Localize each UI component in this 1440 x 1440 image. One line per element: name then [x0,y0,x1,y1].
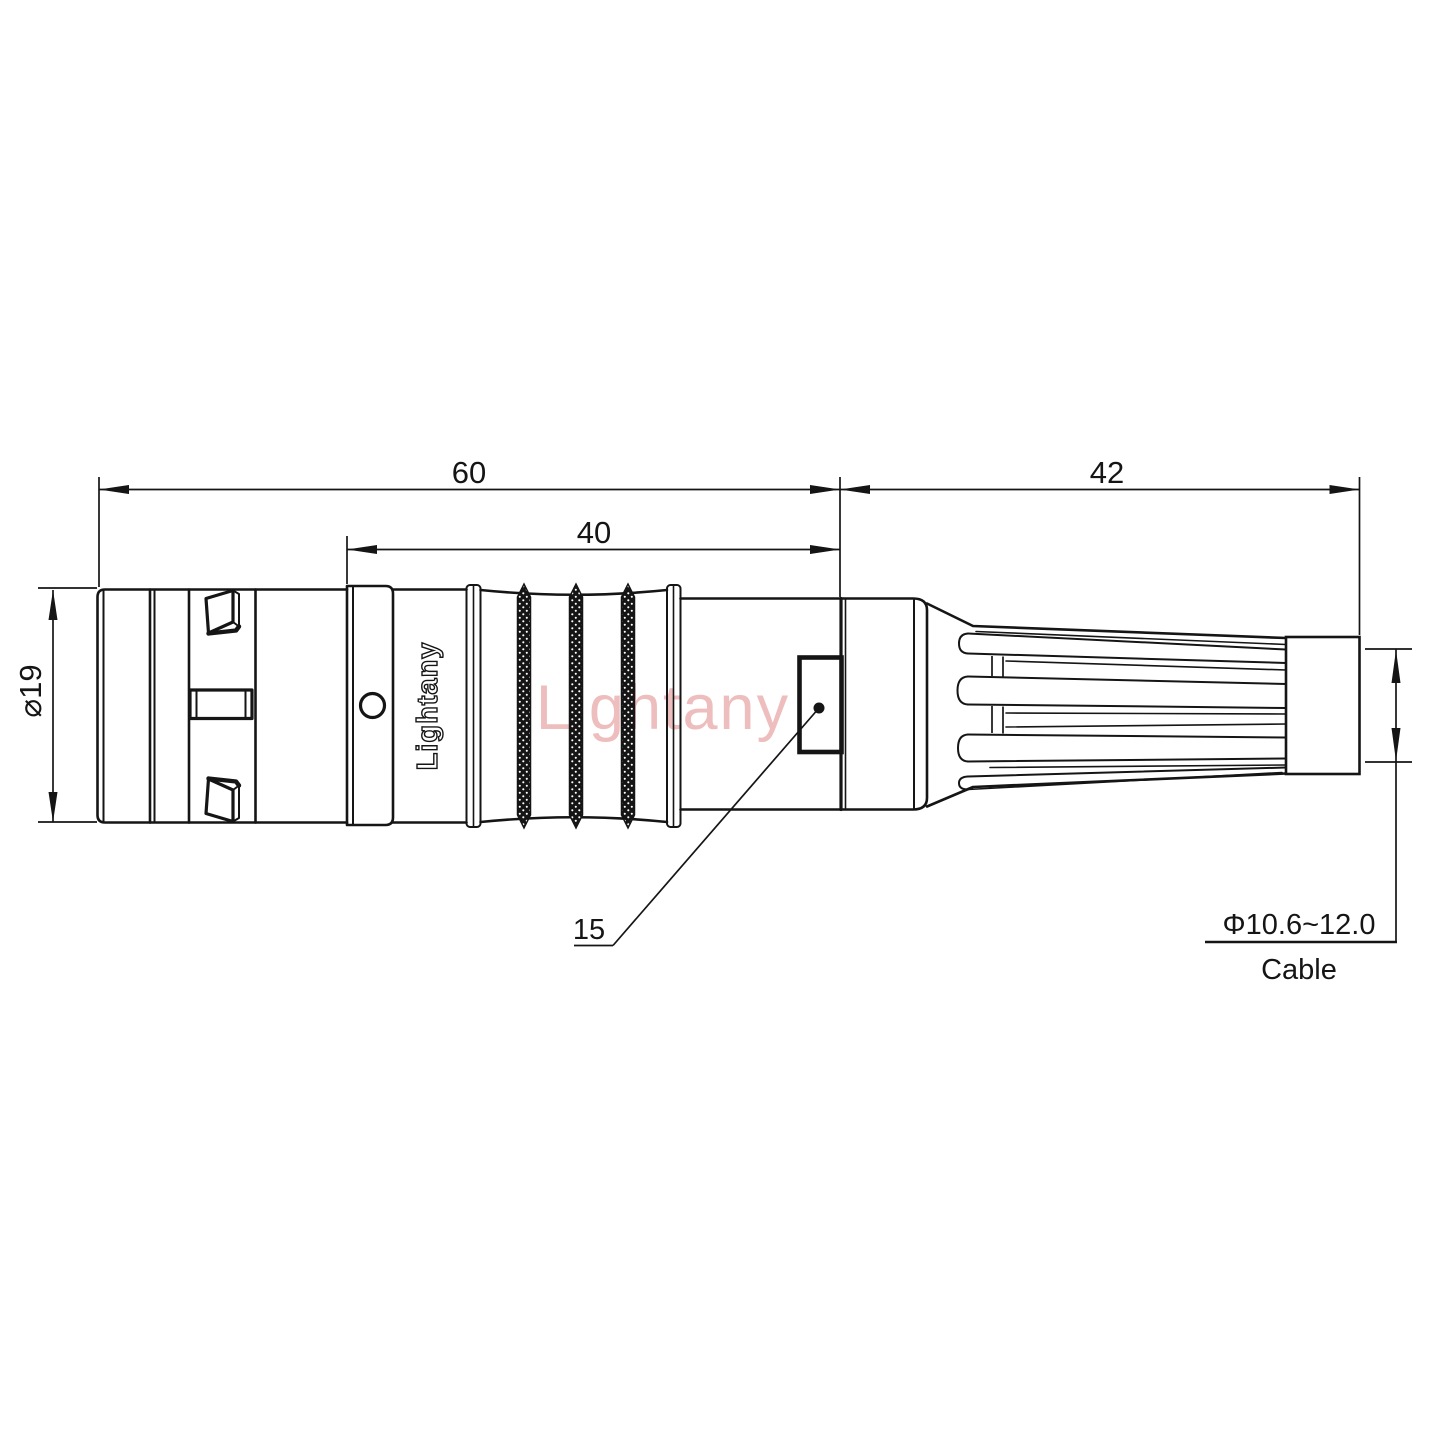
front-shell-outline [98,590,348,823]
front-shell [98,590,348,823]
dim-label-diameter-19: ⌀19 [13,664,48,717]
boot-fin-cap [958,735,968,762]
knurl-band [518,584,531,828]
boot-fin-edge [968,735,1286,738]
bayonet-slot-face [206,779,233,822]
boot-groove-line [990,765,1286,768]
dimension-grip-length: 40 [347,515,840,584]
brand-marking-text: Lightany [412,642,444,771]
key-window-middle [190,690,252,719]
bayonet-slot-face [206,591,233,634]
arrowhead-down [49,792,58,822]
arrowhead-right [810,485,840,494]
collar-hole [361,694,385,718]
arrowhead-down [1392,728,1401,761]
dimension-total-length: 60 [99,455,840,597]
boot-fin-edge [968,677,1286,685]
collar-ring [347,586,393,825]
boot-top-silhouette [927,604,1286,639]
boot-fin-edge [968,759,1286,762]
boot-fin-cap [959,777,968,790]
cable-caption: Cable [1261,954,1337,986]
drawing-page: Lightany [0,0,1440,1440]
bayonet-slot-bottom [206,779,239,822]
arrowhead-left [840,485,870,494]
dim-label-cable-diameter: Φ10.6~12.0 [1223,909,1376,941]
boot-fin-cap [959,634,968,654]
dimension-body-diameter: ⌀19 [13,588,97,822]
arrowhead-right [1330,485,1360,494]
leader-line [613,708,819,946]
boot-bottom-silhouette [927,774,1286,807]
key-window-outline [190,690,252,719]
knurl-band [570,584,583,828]
boot-fin-cap [958,677,969,705]
dim-label-40: 40 [577,515,611,550]
boot-groove-line [1006,713,1286,714]
connector-technical-drawing: Lightany [0,0,1440,1440]
dimension-boot-length: 42 [840,455,1360,635]
knurl-band [622,584,635,828]
strain-relief-boot [927,604,1286,807]
arrowhead-left [347,545,377,554]
bayonet-slot-top [206,591,239,634]
boot-groove-line [1006,724,1286,727]
arrowhead-right [810,545,840,554]
arrowhead-up [1392,650,1401,683]
leader-latch-size: 15 [573,708,819,946]
arrowhead-up [49,590,58,620]
boot-fin-edge [968,705,1286,709]
dim-label-42: 42 [1090,455,1124,490]
cable-end-ferrule [1286,637,1360,774]
dim-label-15: 15 [573,914,605,946]
dim-label-60: 60 [452,455,486,490]
arrowhead-left [99,485,129,494]
